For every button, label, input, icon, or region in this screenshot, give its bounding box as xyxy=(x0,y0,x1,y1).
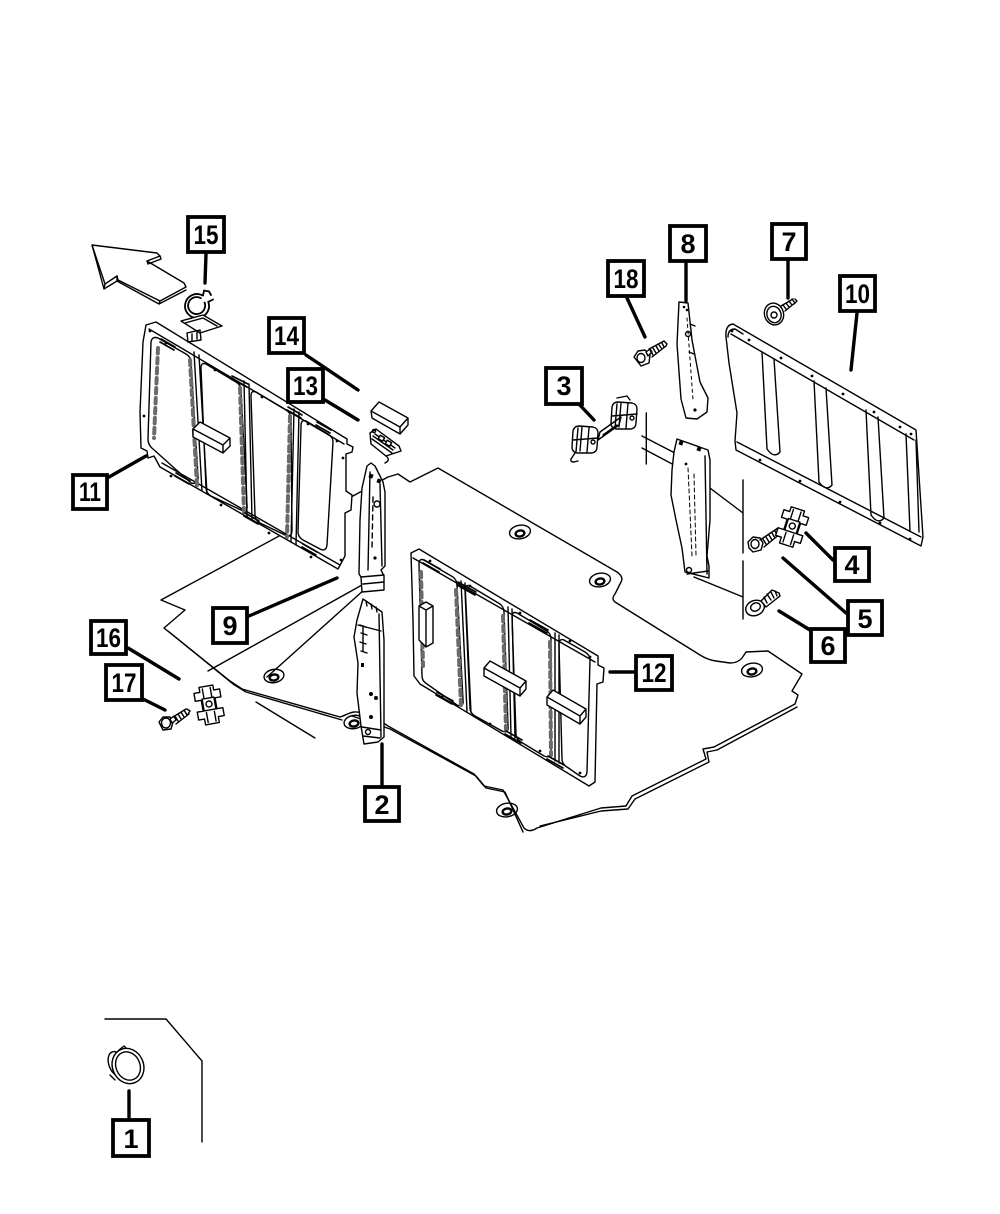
svg-text:5: 5 xyxy=(857,604,872,634)
svg-text:12: 12 xyxy=(642,658,667,688)
svg-text:6: 6 xyxy=(820,631,835,661)
svg-text:15: 15 xyxy=(194,220,219,250)
svg-text:14: 14 xyxy=(274,321,299,351)
svg-text:3: 3 xyxy=(556,371,571,401)
svg-text:8: 8 xyxy=(680,229,695,259)
svg-text:7: 7 xyxy=(781,227,796,257)
svg-text:13: 13 xyxy=(293,371,318,401)
svg-text:18: 18 xyxy=(614,264,639,294)
svg-text:11: 11 xyxy=(79,477,101,507)
svg-text:9: 9 xyxy=(222,611,237,641)
svg-text:10: 10 xyxy=(845,279,870,309)
svg-text:4: 4 xyxy=(844,550,859,580)
svg-text:16: 16 xyxy=(96,623,121,653)
svg-text:17: 17 xyxy=(112,668,137,698)
svg-text:2: 2 xyxy=(374,790,389,820)
svg-text:1: 1 xyxy=(123,1124,138,1154)
